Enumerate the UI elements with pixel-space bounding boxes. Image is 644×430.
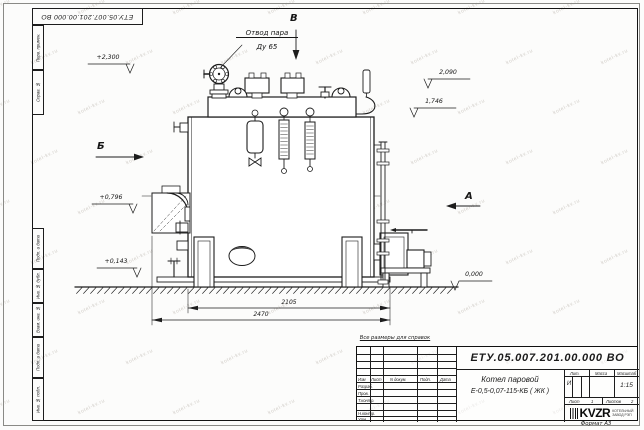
sheet-num: 1 — [591, 399, 593, 404]
view-label-b: Б — [97, 141, 105, 152]
scale-value: 1:15 — [614, 382, 639, 389]
divider — [564, 376, 639, 377]
divider — [357, 389, 456, 390]
divider — [357, 416, 456, 417]
sheet-word: Лист — [569, 399, 580, 404]
elevation-2090: 2,090 — [426, 69, 470, 76]
col-izm: Изм — [358, 377, 366, 382]
row-razrab: Разраб. — [358, 384, 373, 389]
scale-header: Масштаб — [617, 371, 636, 376]
divider — [589, 369, 590, 397]
divider — [357, 403, 456, 404]
steam-outlet-valve — [204, 65, 229, 99]
dimension-upper: 2105 — [259, 299, 319, 306]
row-prov: Пров. — [358, 391, 369, 396]
safety-valve-2 — [281, 73, 304, 98]
elevation-1746: 1,746 — [412, 98, 456, 105]
row-utv: Утв. — [358, 417, 367, 422]
row-tkontr: Т.контр. — [358, 398, 375, 403]
elevation-plus-2300: +2,300 — [85, 54, 131, 61]
lit-header: Лит. — [570, 371, 580, 376]
steam-outlet-label-line1: Отвод пара — [236, 29, 298, 38]
steam-outlet-label-line2: Ду 65 — [236, 43, 298, 51]
company-logo-text: KVZR — [580, 406, 611, 420]
product-name-line2: Е-0,5-0,07-115-КБ ( ЖК ) — [471, 388, 549, 395]
view-label-v: В — [290, 13, 298, 24]
view-arrow-b — [96, 154, 144, 161]
elevation-plus-0143: +0,143 — [94, 258, 138, 265]
sheets-word: Листов — [606, 399, 621, 404]
col-data: Дата — [440, 377, 451, 382]
kvzr-barcode-icon — [570, 408, 578, 419]
lit-value: И — [565, 381, 573, 387]
divider — [437, 347, 438, 422]
divider — [383, 347, 384, 422]
sheets-num: 2 — [631, 399, 633, 404]
thermometer-fitting — [356, 70, 375, 114]
title-doc-number: ЕТУ.05.007.201.00.000 ВО — [471, 352, 625, 364]
manhole — [229, 247, 255, 266]
col-podp: Подп. — [420, 377, 431, 382]
company-sub-line2: ЗАВОД РЭП — [612, 413, 633, 417]
title-block: ЕТУ.05.007.201.00.000 ВО Изм Лист N доку… — [356, 346, 638, 421]
company-cell: KVZR КОТЕЛЬНЫЙ ЗАВОД РЭП — [564, 404, 639, 422]
col-list: Лист — [371, 377, 382, 382]
support-leg-right — [342, 237, 362, 287]
divider — [417, 347, 418, 422]
divider — [357, 354, 456, 355]
divider — [581, 376, 582, 397]
divider — [357, 361, 456, 362]
safety-valve-1 — [245, 73, 269, 98]
format-label: Формат А3 — [556, 421, 636, 427]
ground-line — [75, 287, 458, 294]
product-name-line1: Котел паровой — [481, 375, 538, 384]
mass-header: Масса — [595, 371, 607, 376]
support-leg-left — [194, 237, 214, 287]
col-ndoc: N докум. — [390, 377, 407, 382]
divider — [357, 368, 456, 369]
row-nkontr: Н.контр. — [358, 411, 375, 416]
reference-note: Все размеры для справок — [350, 335, 440, 341]
elevation-plus-0796: +0,796 — [89, 194, 133, 201]
drawing-sheet: kotel-kv.rukotel-kv.rukotel-kv.rukotel-k… — [0, 0, 644, 430]
divider — [602, 397, 603, 404]
drum-small-valve — [319, 87, 331, 98]
view-arrow-a — [446, 203, 480, 210]
dimension-lower: 2470 — [231, 311, 291, 318]
elevation-0000: 0,000 — [455, 271, 493, 278]
view-label-a: А — [465, 191, 473, 202]
